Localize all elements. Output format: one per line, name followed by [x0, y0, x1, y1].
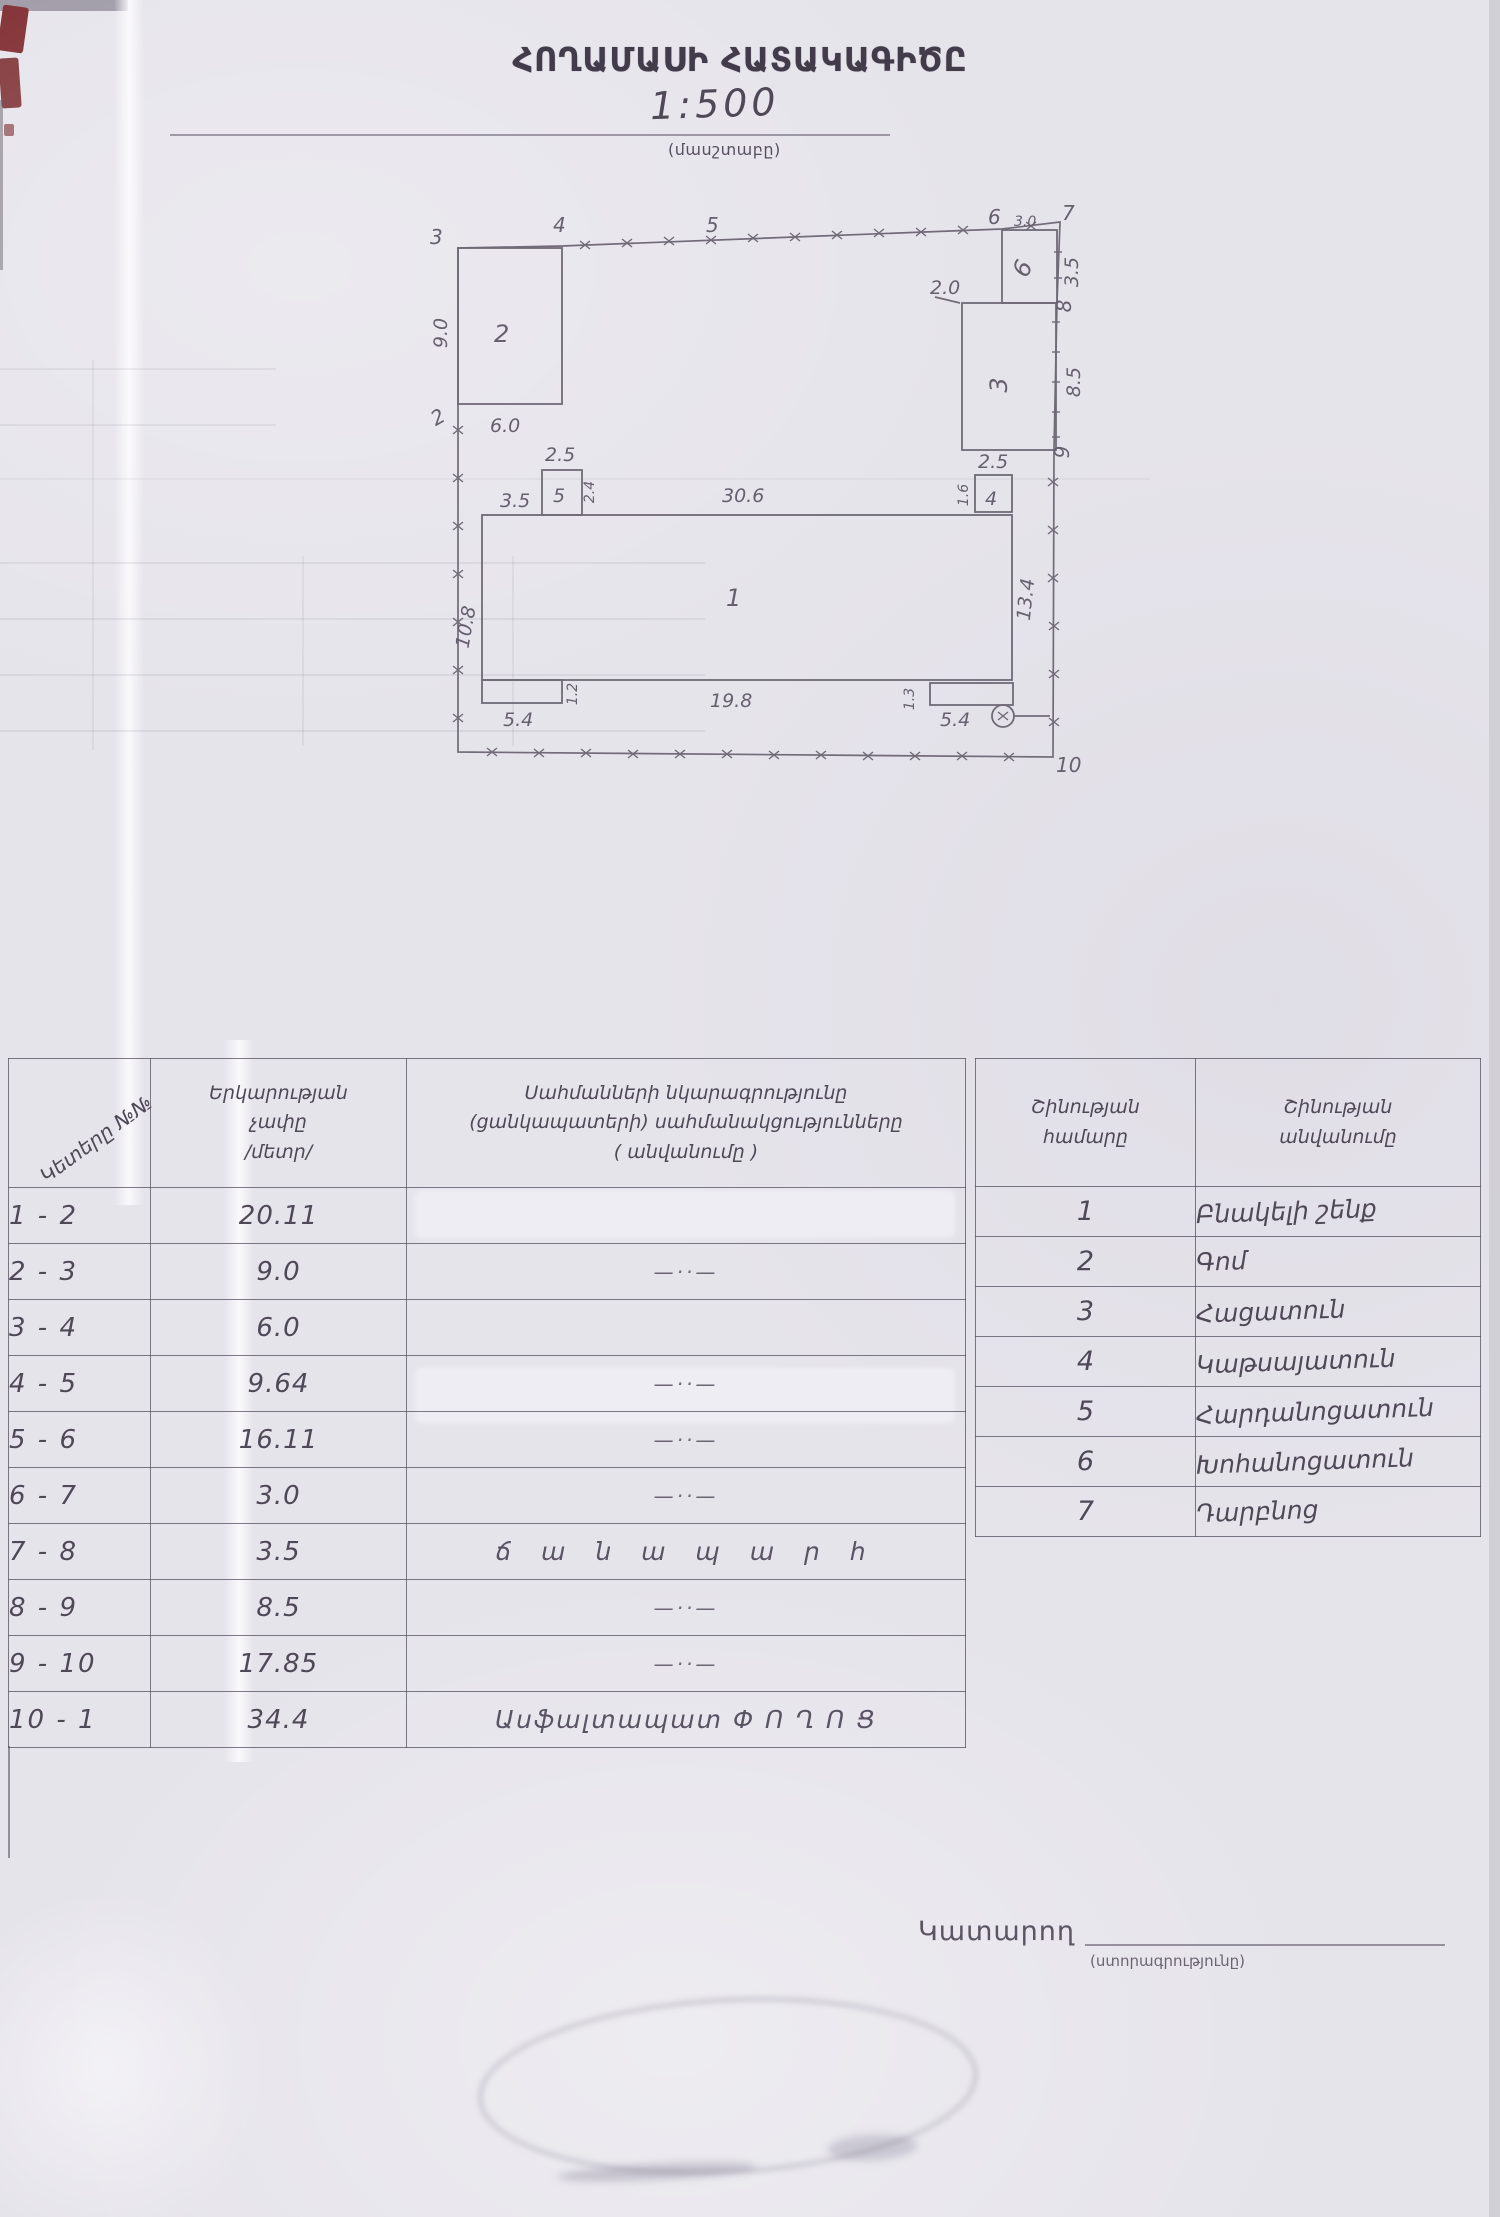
fence-marks-top [580, 222, 1036, 249]
dim-label: 1.2 [565, 683, 581, 705]
stamp-smudge [827, 2132, 918, 2163]
showthrough-line [0, 730, 705, 732]
signature-line [1085, 1944, 1445, 1946]
scanned-document-page: ՀՈՂԱՄԱՍԻ ՀԱՏԱԿԱԳԻԾԸ 1:500 (մասշտաբը) [0, 0, 1500, 2217]
scan-light-patch [0, 1845, 340, 2217]
table-row: 2 Գոմ [976, 1237, 1481, 1287]
segment-cell: 3 - 4 [9, 1300, 151, 1356]
showthrough-line [0, 478, 1150, 480]
description-cell: —··— [407, 1580, 966, 1636]
dim-label: 3.5 [1061, 257, 1083, 287]
length-cell: 3.5 [151, 1524, 407, 1580]
building-number-cell: 3 [976, 1287, 1196, 1337]
table-row: 1 Բնակելի շենք [976, 1187, 1481, 1237]
building-3-outline [962, 303, 1056, 450]
description-cell: —··— [407, 1636, 966, 1692]
building-6-outline [1002, 230, 1057, 303]
description-cell [407, 1188, 966, 1244]
showthrough-line [0, 562, 705, 564]
dim-label: 5.4 [940, 709, 970, 731]
table-row: 2 - 3 9.0 —··— [9, 1244, 966, 1300]
table-row: 8 - 9 8.5 —··— [9, 1580, 966, 1636]
description-cell: —··— [407, 1356, 966, 1412]
building-number-cell: 5 [976, 1387, 1196, 1437]
segment-cell: 2 - 3 [9, 1244, 151, 1300]
length-cell: 17.85 [151, 1636, 407, 1692]
table-row: 6 - 7 3.0 —··— [9, 1468, 966, 1524]
fence-marks-left [453, 426, 463, 722]
stamp-smudge [556, 2159, 757, 2185]
table-row: 3 - 4 6.0 [9, 1300, 966, 1356]
table-border-stub [8, 1746, 10, 1858]
dim-label: 2.5 [545, 444, 575, 466]
boundary-point-label: 6 [988, 205, 1001, 229]
length-cell: 16.11 [151, 1412, 407, 1468]
segment-cell: 4 - 5 [9, 1356, 151, 1412]
dim-label: 2.5 [978, 451, 1008, 473]
signature-caption: (ստորագրությունը) [1090, 1952, 1245, 1970]
building-5-outline [542, 470, 582, 515]
description-cell: Ասֆալտապատ Փ Ո Ղ Ո Ց [407, 1692, 966, 1748]
col-header-length: Երկարության չափը /մետր/ [151, 1059, 407, 1188]
fence-marks-bottom [487, 748, 1014, 761]
segment-cell: 10 - 1 [9, 1692, 151, 1748]
segment-cell: 8 - 9 [9, 1580, 151, 1636]
showthrough-line [512, 556, 514, 746]
scan-streak [114, 0, 144, 1205]
building-name-cell: Գոմ [1196, 1237, 1481, 1287]
length-cell: 20.11 [151, 1188, 407, 1244]
table-row: 5 Հարդանոցատուն [976, 1387, 1481, 1437]
scale-caption: (մասշտաբը) [668, 140, 781, 159]
building-name-cell: Հարդանոցատուն [1196, 1387, 1481, 1437]
building-number-cell: 4 [976, 1337, 1196, 1387]
scan-edge-artifact [1489, 0, 1500, 2217]
table-row: 3 Հացատուն [976, 1287, 1481, 1337]
table-row: 7 Դարբնոց [976, 1487, 1481, 1537]
dim-label: 3.0 [1014, 214, 1036, 230]
dim-label: 2.0 [930, 277, 960, 299]
building-name-cell: Կաթսայատուն [1196, 1337, 1481, 1387]
porch-left-outline [482, 680, 562, 703]
dim-label: 13.4 [1013, 577, 1039, 621]
showthrough-line [0, 424, 276, 426]
building-2-outline [458, 248, 562, 404]
segment-cell: 7 - 8 [9, 1524, 151, 1580]
red-corner-mark [0, 57, 22, 108]
length-cell: 6.0 [151, 1300, 407, 1356]
building-number-cell: 1 [976, 1187, 1196, 1237]
red-corner-mark [0, 4, 29, 53]
building-number-label: 1 [726, 584, 741, 612]
table-row: 4 Կաթսայատուն [976, 1337, 1481, 1387]
executor-label: Կատարող [918, 1916, 1075, 1947]
building-1-outline [482, 515, 1012, 680]
table-row: 9 - 10 17.85 —··— [9, 1636, 966, 1692]
segment-cell: 1 - 2 [9, 1188, 151, 1244]
table-row: 10 - 1 34.4 Ասֆալտապատ Փ Ո Ղ Ո Ց [9, 1692, 966, 1748]
boundary-point-label: 5 [706, 213, 719, 237]
boundary-point-label: 10 [1056, 753, 1081, 777]
building-number-cell: 6 [976, 1437, 1196, 1487]
boundary-point-label: 9 [1050, 446, 1074, 459]
showthrough-line [92, 360, 94, 750]
dim-leader-line [935, 297, 960, 303]
dim-label: 1.6 [956, 484, 972, 506]
boundary-point-label: 3 [430, 225, 443, 249]
description-cell: —··— [407, 1468, 966, 1524]
buildings-table: Շինության համարը Շինության անվանումը 1 Բ… [975, 1058, 1481, 1537]
well-symbol [992, 705, 1014, 727]
building-number-label: 4 [985, 488, 997, 510]
building-name-cell: Խոհանոցատուն [1196, 1437, 1481, 1487]
showthrough-line [0, 674, 705, 676]
table-row: 5 - 6 16.11 —··— [9, 1412, 966, 1468]
description-cell: —··— [407, 1244, 966, 1300]
building-name-cell: Հացատուն [1196, 1287, 1481, 1337]
showthrough-line [0, 368, 276, 370]
plot-boundary [458, 222, 1060, 757]
description-cell: —··— [407, 1412, 966, 1468]
building-number-label: 2 [494, 320, 509, 348]
showthrough-line [0, 618, 705, 620]
building-number-cell: 7 [976, 1487, 1196, 1537]
building-number-label: 6 [1007, 256, 1039, 282]
col-header-points: Կետերը №№ [9, 1059, 151, 1188]
length-cell: 9.64 [151, 1356, 407, 1412]
dim-label: 2.4 [582, 481, 598, 503]
building-number-label: 3 [985, 377, 1013, 392]
dim-label: 9.0 [430, 318, 452, 348]
length-cell: 34.4 [151, 1692, 407, 1748]
col-header-description: Սահմանների նկարագրությունը (ցանկապատերի)… [407, 1059, 966, 1188]
boundary-point-label: 8 [1052, 300, 1076, 313]
dim-label: 6.0 [490, 415, 520, 437]
col-header-building-name: Շինության անվանումը [1196, 1059, 1481, 1187]
stamp-imprint [474, 1985, 983, 2187]
boundary-point-label: 7 [1062, 201, 1075, 225]
length-cell: 8.5 [151, 1580, 407, 1636]
boundary-point-label: 2 [426, 403, 449, 430]
building-name-cell: Դարբնոց [1196, 1487, 1481, 1537]
porch-right-outline [930, 683, 1013, 705]
dim-label: 10.8 [452, 604, 481, 649]
length-cell: 9.0 [151, 1244, 407, 1300]
fence-marks-right [1048, 252, 1062, 726]
scale-underline [170, 134, 890, 136]
showthrough-line [302, 556, 304, 746]
building-number-cell: 2 [976, 1237, 1196, 1287]
scale-value: 1:500 [649, 80, 780, 128]
dim-label: 30.6 [722, 485, 764, 507]
segment-cell: 9 - 10 [9, 1636, 151, 1692]
scan-edge-artifact [0, 100, 3, 270]
dim-label: 8.5 [1063, 367, 1085, 397]
boundary-table: Կետերը №№ Երկարության չափը /մետր/ Սահման… [8, 1058, 966, 1748]
table-row: 7 - 8 3.5 ճ ա ն ա պ ա ր հ [9, 1524, 966, 1580]
building-number-label: 5 [553, 485, 565, 507]
boundary-point-label: 4 [553, 213, 566, 237]
length-cell: 3.0 [151, 1468, 407, 1524]
dim-label: 5.4 [503, 709, 533, 731]
table-row: 1 - 2 20.11 [9, 1188, 966, 1244]
description-cell [407, 1300, 966, 1356]
description-cell: ճ ա ն ա պ ա ր հ [407, 1524, 966, 1580]
table-row: 6 Խոհանոցատուն [976, 1437, 1481, 1487]
table-row: 4 - 5 9.64 —··— [9, 1356, 966, 1412]
dim-label: 19.8 [710, 690, 752, 712]
dim-label: 3.5 [500, 490, 530, 512]
dim-label: 1.3 [902, 688, 918, 710]
red-corner-mark [4, 124, 14, 136]
document-title: ՀՈՂԱՄԱՍԻ ՀԱՏԱԿԱԳԻԾԸ [488, 40, 992, 79]
segment-cell: 6 - 7 [9, 1468, 151, 1524]
col-header-building-number: Շինության համարը [976, 1059, 1196, 1187]
segment-cell: 5 - 6 [9, 1412, 151, 1468]
building-name-cell: Բնակելի շենք [1196, 1187, 1481, 1237]
building-4-outline [975, 475, 1012, 512]
